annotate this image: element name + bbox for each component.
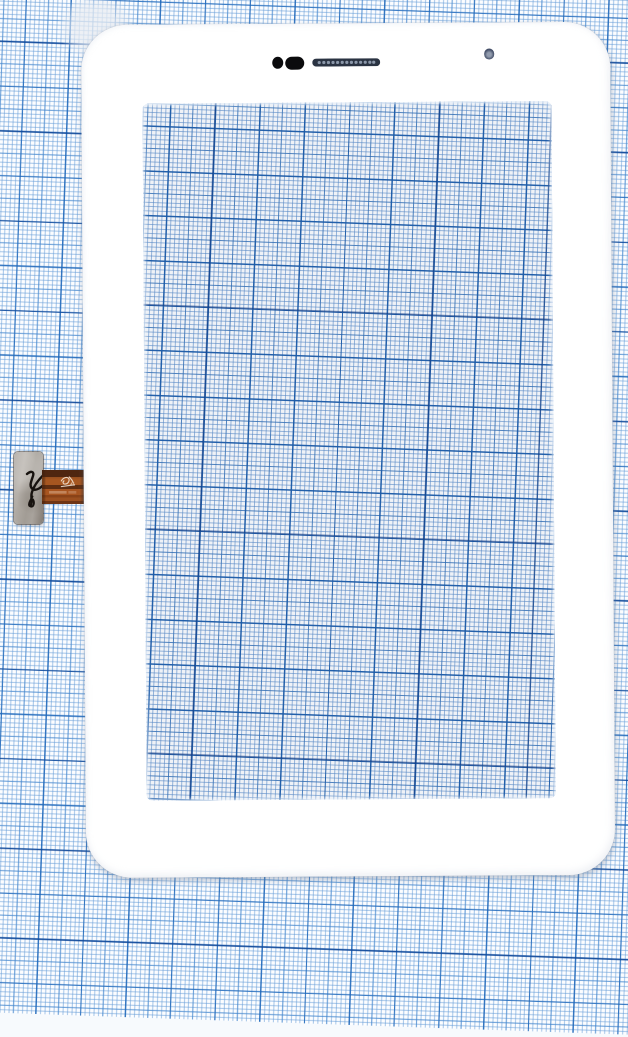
svg-text:41: 41: [70, 482, 75, 487]
